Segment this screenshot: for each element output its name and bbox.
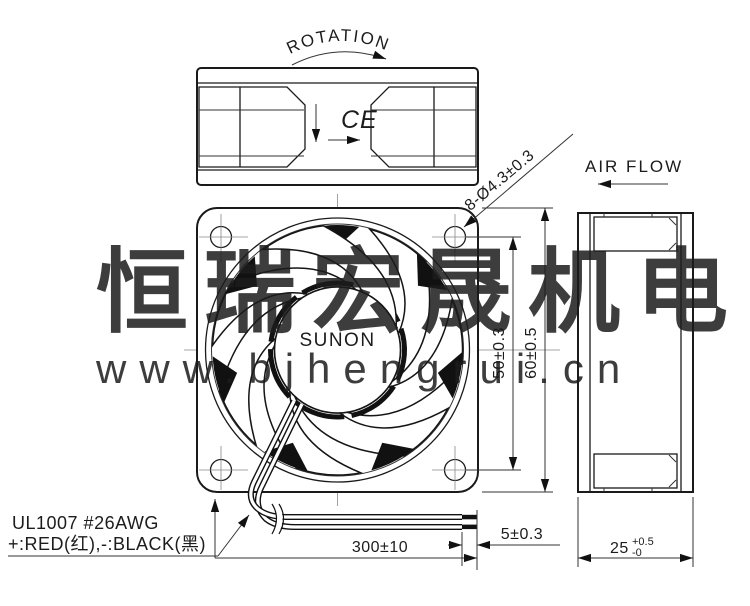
wire-spec-line1: UL1007 #26AWG (12, 513, 159, 533)
chamfer-line (669, 455, 676, 462)
dim-depth-tol-minus: -0 (632, 547, 642, 559)
wire-tip (462, 525, 477, 530)
rotation-label: ROTATION (284, 26, 393, 65)
right-cutout (371, 87, 476, 167)
rotation-arrow-icon (292, 52, 386, 65)
right-cutout-outline (371, 87, 476, 167)
chamfer-line (669, 480, 676, 487)
wire-spec-line2: +:RED(红),-:BLACK(黑) (8, 534, 206, 554)
watermark-url: www.bjhengrui.cn (95, 345, 633, 392)
dim-depth: 25 +0.5 -0 (578, 497, 693, 567)
wire-spec-label: UL1007 #26AWG +:RED(红),-:BLACK(黑) (8, 513, 249, 556)
ce-mark: CE (341, 106, 378, 134)
fan-spec-drawing-page: ROTATION CE (0, 0, 750, 606)
chamfer-line (669, 218, 676, 225)
top-view: CE (197, 68, 478, 185)
leader-line (464, 134, 573, 227)
watermark-company: 恒瑞宏晟机电 (96, 242, 744, 344)
fan-technical-drawing: ROTATION CE (0, 0, 750, 606)
left-cutout (199, 87, 305, 167)
dim-lead-length-text: 300±10 (352, 539, 408, 556)
dim-strip-length-text: 5±0.3 (501, 526, 543, 543)
wire-tip (462, 515, 477, 520)
air-flow-label: AIR FLOW (585, 157, 683, 184)
leader-line (218, 515, 249, 556)
air-flow-text: AIR FLOW (585, 157, 683, 176)
dim-mounting-holes-text: 8-Ø4.3±0.3 (462, 147, 538, 215)
rotation-text: ROTATION (284, 26, 393, 58)
side-bottom-boss (594, 454, 677, 488)
left-cutout-outline (199, 87, 305, 167)
dim-depth-value: 25 (610, 540, 629, 557)
watermark: 恒瑞宏晟机电 www.bjhengrui.cn (95, 242, 744, 392)
